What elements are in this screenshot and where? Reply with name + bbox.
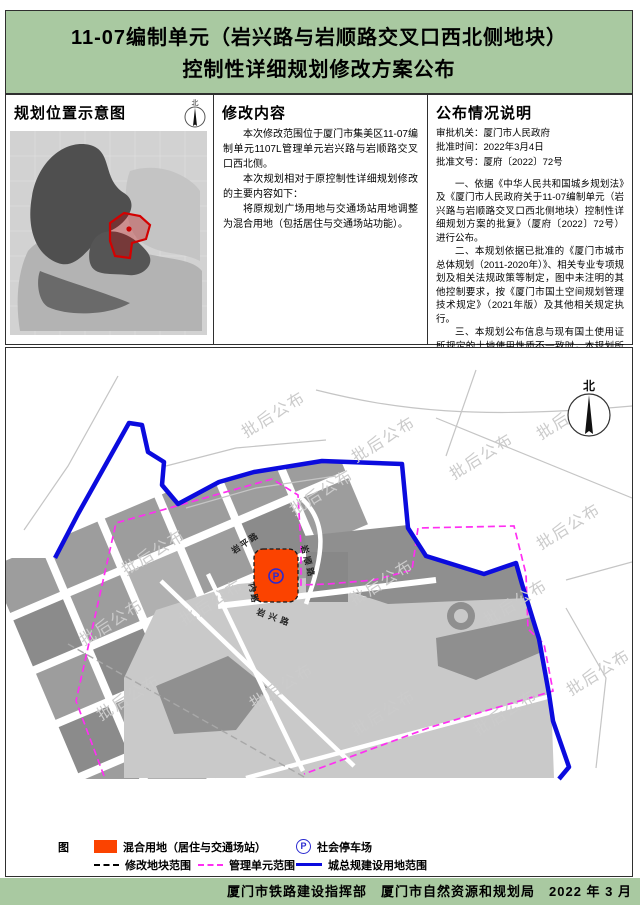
content-heading: 修改内容 [222, 102, 427, 123]
location-panel: 规划位置示意图 北 [6, 95, 214, 344]
approval-date: 批准时间：2022年3月4日 [436, 141, 624, 155]
announcement-panel: 公布情况说明 审批机关：厦门市人民政府 批准时间：2022年3月4日 批准文号：… [428, 95, 632, 344]
plan-map-section: P 岩平路 岩顺路 内路 岩兴路 批后公布 批后公布 批后公布 批后公布 批后公… [5, 347, 633, 877]
footer-text: 厦门市铁路建设指挥部 厦门市自然资源和规划局 2022 年 3 月 [227, 884, 632, 899]
announcement-heading: 公布情况说明 [436, 102, 632, 123]
svg-text:北: 北 [192, 99, 199, 107]
announcement-paragraph: 一、依据《中华人民共和国城乡规划法》及《厦门市人民政府关于11-07编制单元（岩… [436, 178, 624, 245]
footer-bar: 厦门市铁路建设指挥部 厦门市自然资源和规划局 2022 年 3 月 [0, 878, 640, 905]
content-paragraph: 将原规划广场用地与交通场站用地调整为混合用地（包括居住与交通场站功能）。 [223, 202, 418, 232]
title-line-1: 11-07编制单元（岩兴路与岩顺路交叉口西北侧地块） [6, 22, 632, 54]
approval-meta: 审批机关：厦门市人民政府 批准时间：2022年3月4日 批准文号：厦府〔2022… [428, 127, 632, 170]
minimap-site-dot [126, 226, 131, 231]
title-line-2: 控制性详细规划修改方案公布 [6, 54, 632, 86]
svg-text:P: P [273, 572, 280, 583]
svg-text:北: 北 [583, 378, 595, 393]
content-paragraph: 本次规划相对于原控制性详细规划修改的主要内容如下： [223, 172, 418, 202]
content-paragraph: 本次修改范围位于厦门市集美区11-07编制单元1107L管理单元岩兴路与岩顺路交… [223, 127, 418, 172]
approval-authority: 审批机关：厦门市人民政府 [436, 127, 624, 141]
announcement-paragraph: 二、本规划依据已批准的《厦门市城市总体规划（2011-2020年）》、相关专业专… [436, 245, 624, 326]
announcement-title: 11-07编制单元（岩兴路与岩顺路交叉口西北侧地块） 控制性详细规划修改方案公布 [5, 10, 633, 94]
location-minimap [10, 131, 207, 335]
plan-map: P 岩平路 岩顺路 内路 岩兴路 批后公布 批后公布 批后公布 批后公布 批后公… [6, 348, 632, 876]
approval-number: 批准文号：厦府〔2022〕72号 [436, 156, 624, 170]
mini-compass-icon: 北 [182, 97, 208, 129]
content-panel: 修改内容 本次修改范围位于厦门市集美区11-07编制单元1107L管理单元岩兴路… [214, 95, 428, 344]
info-columns: 规划位置示意图 北 修改内容 本次修改范围位于厦门市集美区11-0 [5, 94, 633, 345]
